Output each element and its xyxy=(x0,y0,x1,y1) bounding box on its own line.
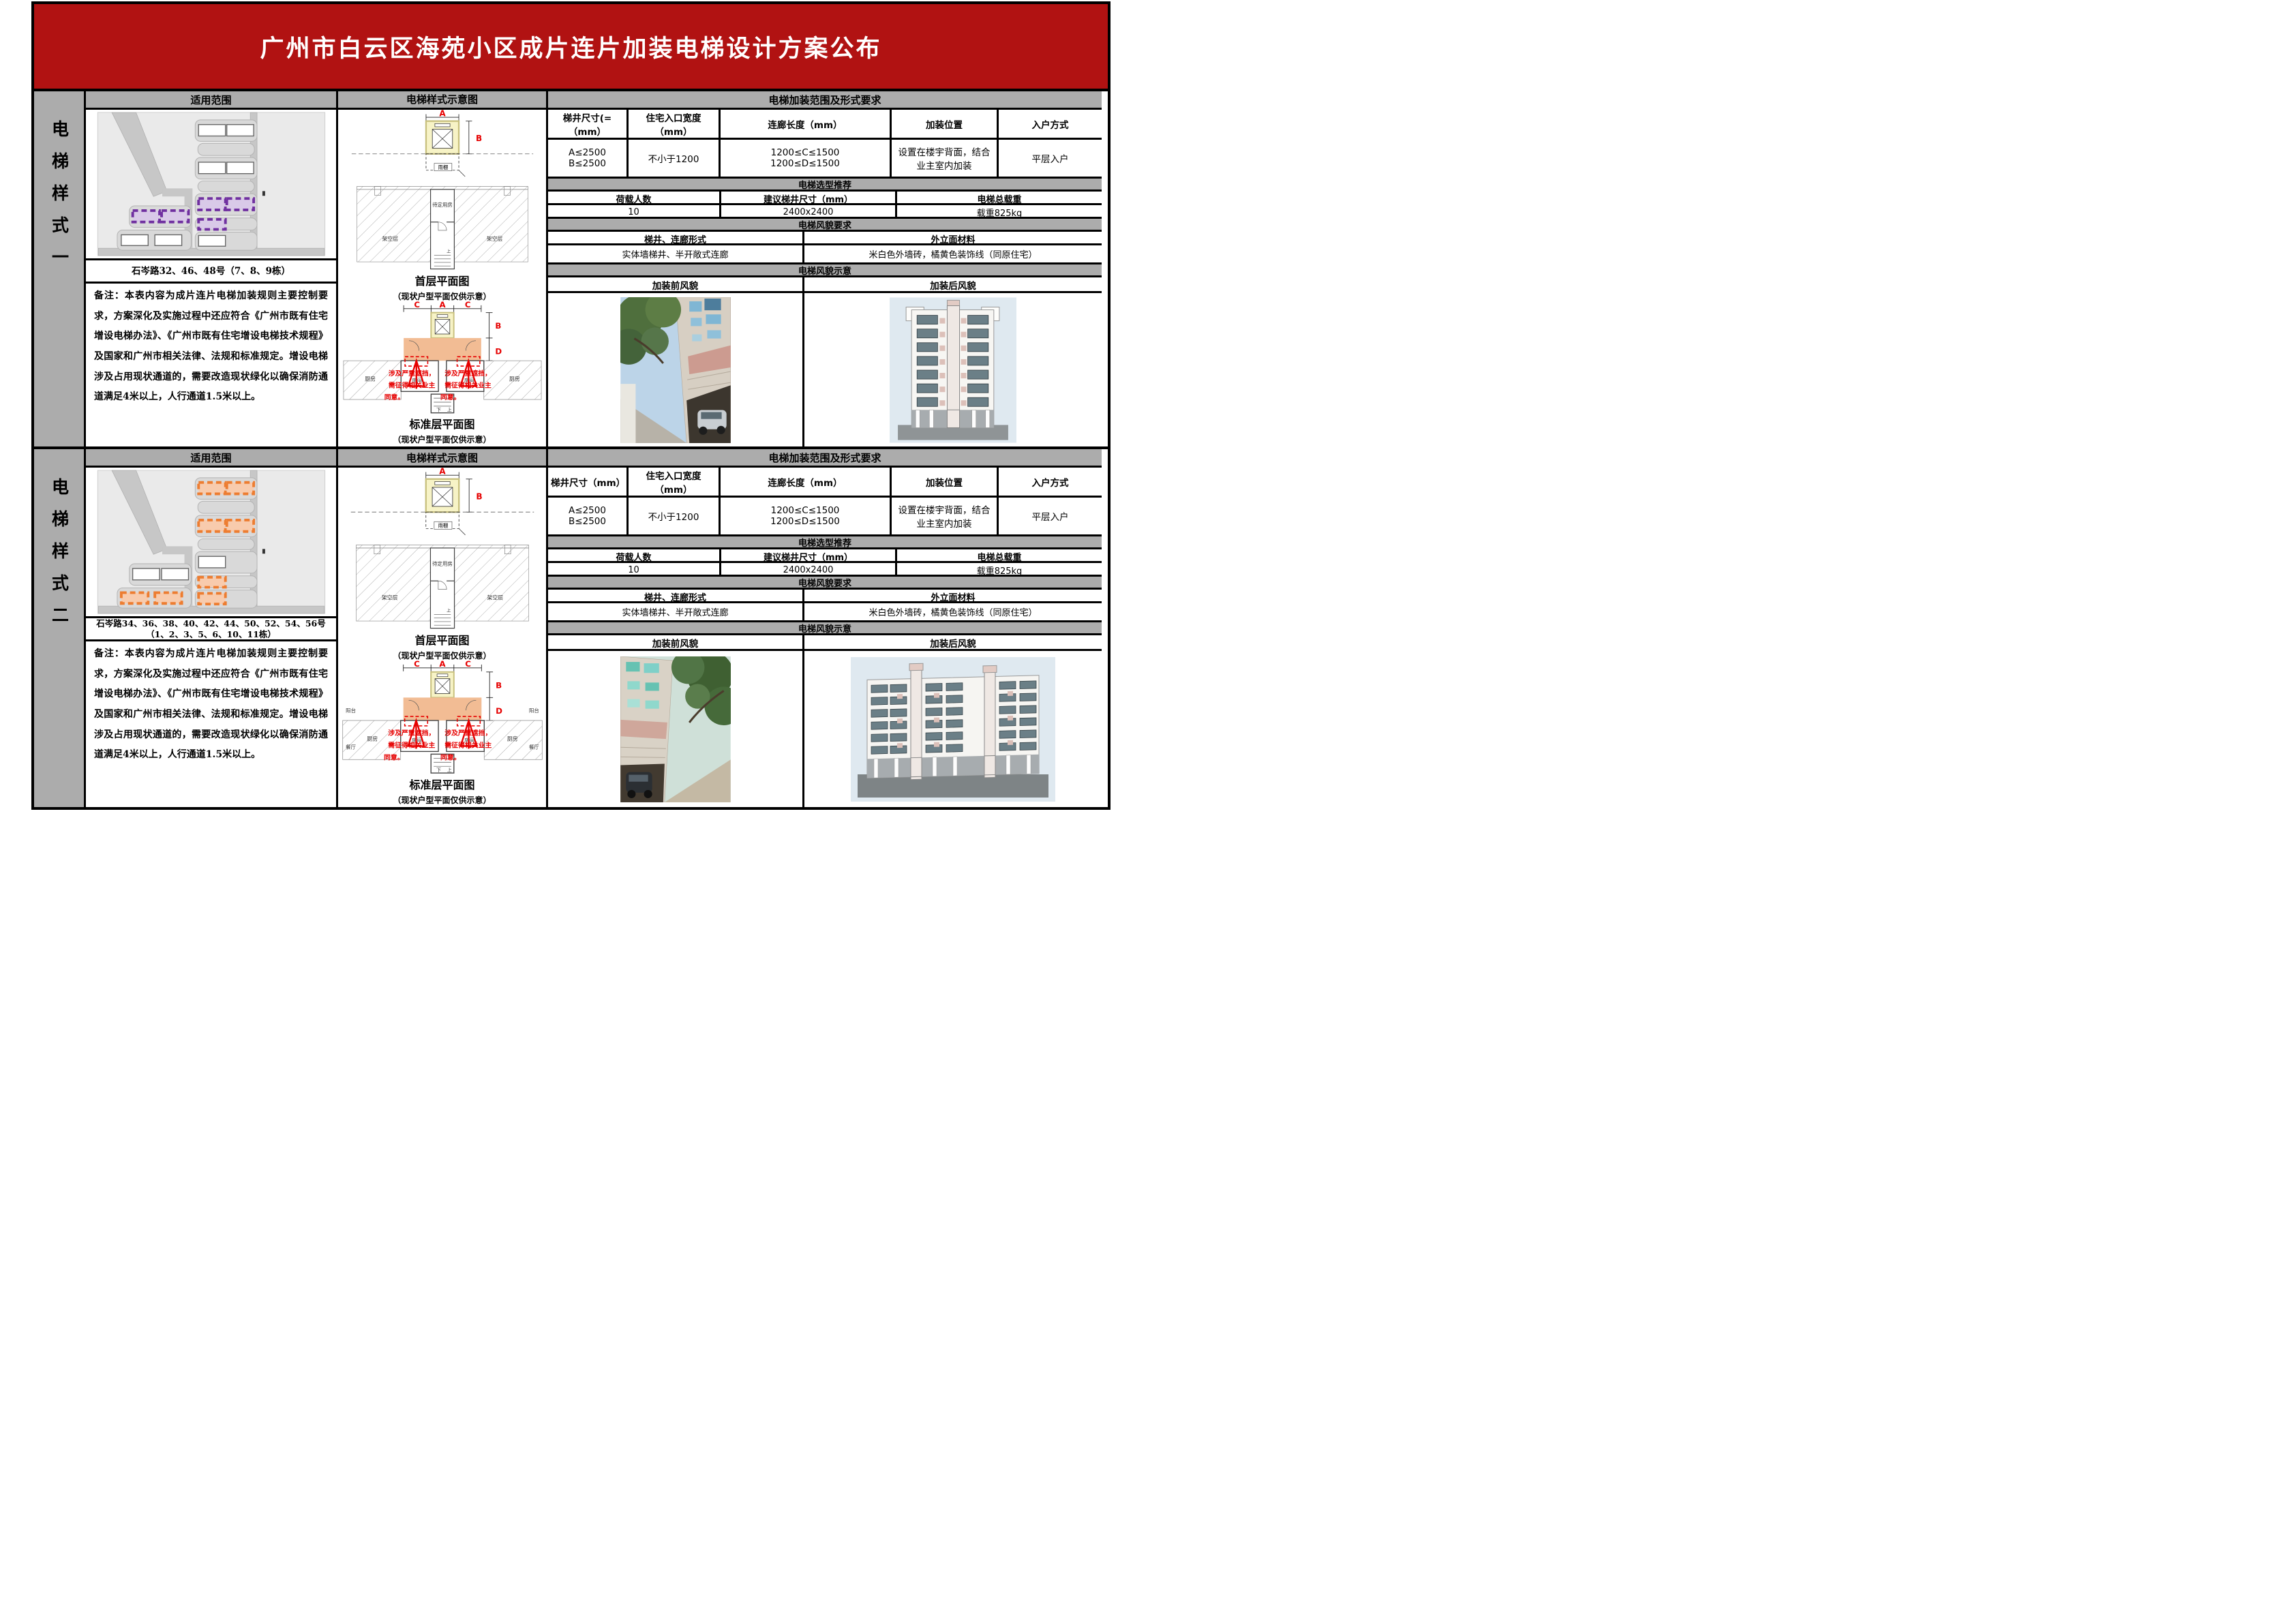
dim-a-label: A xyxy=(439,110,446,118)
cell-value: 载重825kg xyxy=(895,205,1102,219)
dim-b-label: B xyxy=(496,681,502,691)
photo-before-cell xyxy=(548,651,802,807)
side-label-style-1: 电梯样式一 xyxy=(34,91,86,446)
col-header: 外立面材料 xyxy=(802,590,1102,604)
appearance-values: 实体墙梯井、半开敞式连廊 米白色外墙砖，橘黄色装饰线（同原住宅） xyxy=(548,603,1102,622)
photo-after-cell xyxy=(802,651,1102,807)
scope-note: 备注：本表内容为成片连片电梯加装规则主要控制要求，方案深化及实施过程中还应符合《… xyxy=(86,284,336,446)
cell-value: 实体墙梯井、半开敞式连廊 xyxy=(548,245,802,262)
selection-values: 10 2400x2400 载重825kg xyxy=(548,205,1102,219)
scope-address: 石岑路34、36、38、40、42、44、50、52、54、56号（1、2、3、… xyxy=(86,618,336,641)
diagram-column-2: 电梯样式示意图 A B 雨棚 xyxy=(338,449,548,807)
dim-a-label: A xyxy=(439,468,446,476)
cell-value: A≤2500 B≤2500 xyxy=(548,140,626,177)
col-header: 加装前风貌 xyxy=(548,635,802,650)
requirements-header: 电梯加装范围及形式要求 xyxy=(548,449,1102,468)
requirements-col-headers: 梯井尺寸（mm） 住宅入口宽度（mm） 连廊长度（mm） 加装位置 入户方式 xyxy=(548,468,1102,498)
appearance-values: 实体墙梯井、半开敞式连廊 米白色外墙砖，橘黄色装饰线（同原住宅） xyxy=(548,245,1102,264)
cell-value: 米白色外墙砖，橘黄色装饰线（同原住宅） xyxy=(802,245,1102,262)
selection-header: 电梯选型推荐 xyxy=(548,536,1102,549)
site-map-area-2 xyxy=(86,468,336,618)
col-header: 住宅入口宽度（mm） xyxy=(626,110,719,138)
diagram-header: 电梯样式示意图 xyxy=(338,449,546,468)
scope-note: 备注：本表内容为成片连片电梯加装规则主要控制要求，方案深化及实施过程中还应符合《… xyxy=(86,641,336,807)
cell-value: 不小于1200 xyxy=(626,140,719,177)
poster-frame: 广州市白云区海苑小区成片连片加装电梯设计方案公布 电梯样式一 适用范围 xyxy=(31,1,1111,810)
shaft-schematic-2: A B 雨棚 xyxy=(340,468,545,543)
dim-a-label: A xyxy=(439,660,446,669)
balcony-right-label: 阳台 xyxy=(529,707,539,714)
first-floor-caption-wrap: 首层平面图 （现状户型平面仅供示意） xyxy=(338,631,546,660)
col-header: 连廊长度（mm） xyxy=(719,110,890,138)
photo-after-illustration xyxy=(890,297,1016,443)
scope-column-1: 适用范围 xyxy=(86,91,338,446)
col-header: 荷载人数 xyxy=(548,192,719,206)
col-header: 建议梯井尺寸（mm） xyxy=(719,192,895,206)
col-header: 电梯总载重 xyxy=(895,549,1102,564)
cell-value: 实体墙梯井、半开敞式连廊 xyxy=(548,603,802,620)
standard-note: （现状户型平面仅供示意） xyxy=(338,434,546,445)
col-header: 梯井、连廊形式 xyxy=(548,590,802,604)
scope-column-2: 适用范围 xyxy=(86,449,338,807)
appearance-col-headers: 梯井、连廊形式 外立面材料 xyxy=(548,232,1102,245)
dim-b-label: B xyxy=(495,321,501,331)
standard-caption: 标准层平面图 xyxy=(338,776,546,792)
standard-floor-plan-2: C A C B D 下 xyxy=(340,660,545,776)
col-header: 加装后风貌 xyxy=(802,635,1102,650)
dim-a-label: A xyxy=(439,301,446,309)
kitchen-right-label: 厨房 xyxy=(509,375,520,382)
col-header: 加装位置 xyxy=(890,110,997,138)
dim-d-label: D xyxy=(495,346,502,356)
site-map-style-1 xyxy=(97,112,326,256)
col-header: 电梯总载重 xyxy=(895,192,1102,206)
dim-b-label: B xyxy=(475,134,481,143)
warning-left: 涉及严重遮挡， 需征得相关业主 同意。 xyxy=(384,729,438,762)
photo-after-cell xyxy=(802,293,1102,446)
dim-c-right-label: C xyxy=(465,660,471,669)
demo-header: 电梯风貌示意 xyxy=(548,622,1102,635)
stairs-down-label: 下 xyxy=(436,768,441,773)
cell-value: 平层入户 xyxy=(997,140,1102,177)
kitchen-right-label: 厨房 xyxy=(507,735,517,742)
appearance-col-headers: 梯井、连廊形式 外立面材料 xyxy=(548,590,1102,603)
stairs-up-label: 上 xyxy=(447,249,451,254)
site-map-style-2 xyxy=(97,470,326,614)
dim-b-label: B xyxy=(476,492,482,502)
dim-c-right-label: C xyxy=(464,301,470,309)
photo-before-cell xyxy=(548,293,802,446)
dim-d-label: D xyxy=(496,706,502,716)
dining-right-label: 餐厅 xyxy=(529,744,539,750)
selection-col-headers: 荷载人数 建议梯井尺寸（mm） 电梯总载重 xyxy=(548,192,1102,205)
diagram-header: 电梯样式示意图 xyxy=(338,91,546,110)
section-style-1: 电梯样式一 适用范围 xyxy=(34,91,1108,449)
dining-left-label: 餐厅 xyxy=(346,744,356,750)
first-floor-caption: 首层平面图 xyxy=(338,272,546,288)
cell-value: 平层入户 xyxy=(997,498,1102,534)
requirements-column-1: 电梯加装范围及形式要求 梯井尺寸(=（mm） 住宅入口宽度（mm） 连廊长度（m… xyxy=(548,91,1102,446)
warning-left: 涉及严重遮挡， 需征得相关业主 同意。 xyxy=(384,369,437,401)
cell-value: A≤2500 B≤2500 xyxy=(548,498,626,534)
stilt-left-label: 架空层 xyxy=(381,594,397,601)
col-header: 加装位置 xyxy=(890,468,997,496)
selection-values: 10 2400x2400 载重825kg xyxy=(548,563,1102,577)
side-label-text: 电梯样式二 xyxy=(47,449,72,807)
requirements-header: 电梯加装范围及形式要求 xyxy=(548,91,1102,110)
requirements-values: A≤2500 B≤2500 不小于1200 1200≤C≤1500 1200≤D… xyxy=(548,140,1102,179)
cell-value: 10 xyxy=(548,563,719,577)
scope-header: 适用范围 xyxy=(86,449,336,468)
section-style-2: 电梯样式二 适用范围 xyxy=(34,449,1108,807)
col-header: 加装后风貌 xyxy=(802,277,1102,292)
selection-header: 电梯选型推荐 xyxy=(548,179,1102,192)
site-map-area-1 xyxy=(86,110,336,260)
demo-header: 电梯风貌示意 xyxy=(548,264,1102,277)
stilt-right-label: 架空层 xyxy=(487,594,503,601)
pending-room-label: 待定用房 xyxy=(432,202,453,208)
cell-value: 1200≤C≤1500 1200≤D≤1500 xyxy=(719,498,890,534)
col-header: 梯井尺寸(=（mm） xyxy=(548,110,626,138)
cell-value: 米白色外墙砖，橘黄色装饰线（同原住宅） xyxy=(802,603,1102,620)
cell-value: 不小于1200 xyxy=(626,498,719,534)
side-label-style-2: 电梯样式二 xyxy=(34,449,86,807)
cell-value: 设置在楼宇背面，结合业主室内加装 xyxy=(890,498,997,534)
side-label-text: 电梯样式一 xyxy=(47,91,72,446)
cell-value: 载重825kg xyxy=(895,563,1102,577)
cell-value: 10 xyxy=(548,205,719,219)
col-header: 入户方式 xyxy=(997,110,1102,138)
scope-header: 适用范围 xyxy=(86,91,336,110)
col-header: 建议梯井尺寸（mm） xyxy=(719,549,895,564)
stilt-left-label: 架空层 xyxy=(382,235,398,242)
kitchen-left-label: 厨房 xyxy=(367,735,378,742)
requirements-column-2: 电梯加装范围及形式要求 梯井尺寸（mm） 住宅入口宽度（mm） 连廊长度（mm）… xyxy=(548,449,1102,807)
balcony-left-label: 阳台 xyxy=(346,707,356,714)
title-banner: 广州市白云区海苑小区成片连片加装电梯设计方案公布 xyxy=(34,4,1108,91)
photo-after-illustration xyxy=(851,656,1055,802)
stilt-right-label: 架空层 xyxy=(486,235,502,242)
scope-address: 石岑路32、46、48号（7、8、9栋） xyxy=(86,260,336,284)
page-title: 广州市白云区海苑小区成片连片加装电梯设计方案公布 xyxy=(260,29,881,64)
requirements-col-headers: 梯井尺寸(=（mm） 住宅入口宽度（mm） 连廊长度（mm） 加装位置 入户方式 xyxy=(548,110,1102,140)
appearance-header: 电梯风貌要求 xyxy=(548,577,1102,590)
first-floor-plan-1: 待定用房 架空层 架空层 上 xyxy=(340,184,545,272)
kitchen-left-label: 厨房 xyxy=(365,375,376,382)
standard-caption: 标准层平面图 xyxy=(338,415,546,431)
stairs-up-label: 上 xyxy=(447,767,451,773)
demo-col-headers: 加装前风貌 加装后风貌 xyxy=(548,277,1102,293)
dim-c-left-label: C xyxy=(414,301,420,309)
col-header: 连廊长度（mm） xyxy=(719,468,890,496)
stairs-up-label: 上 xyxy=(447,406,451,412)
col-header: 梯井、连廊形式 xyxy=(548,232,802,246)
canopy-label: 雨棚 xyxy=(438,522,448,529)
col-header: 荷载人数 xyxy=(548,549,719,564)
stairs-up-label: 上 xyxy=(447,608,451,613)
col-header: 外立面材料 xyxy=(802,232,1102,246)
requirements-values: A≤2500 B≤2500 不小于1200 1200≤C≤1500 1200≤D… xyxy=(548,498,1102,536)
cell-value: 1200≤C≤1500 1200≤D≤1500 xyxy=(719,140,890,177)
photo-before-illustration xyxy=(620,297,731,443)
demo-photos-2 xyxy=(548,651,1102,807)
notice-poster-page: 广州市白云区海苑小区成片连片加装电梯设计方案公布 电梯样式一 适用范围 xyxy=(0,0,1148,811)
first-floor-caption: 首层平面图 xyxy=(338,631,546,648)
standard-floor-plan-1: C A C B D 下 上 xyxy=(340,301,545,416)
standard-caption-wrap: 标准层平面图 （现状户型平面仅供示意） xyxy=(338,415,546,446)
standard-note: （现状户型平面仅供示意） xyxy=(338,794,546,806)
shaft-schematic-1: A B 雨棚 xyxy=(340,110,545,184)
first-floor-caption-wrap: 首层平面图 （现状户型平面仅供示意） xyxy=(338,272,546,301)
demo-photos-1 xyxy=(548,293,1102,446)
col-header: 加装前风貌 xyxy=(548,277,802,292)
selection-col-headers: 荷载人数 建议梯井尺寸（mm） 电梯总载重 xyxy=(548,549,1102,563)
demo-col-headers: 加装前风貌 加装后风貌 xyxy=(548,635,1102,651)
first-floor-plan-2: 待定用房 架空层 架空层 上 xyxy=(340,543,545,631)
col-header: 入户方式 xyxy=(997,468,1102,496)
stairs-down-label: 下 xyxy=(436,407,441,412)
standard-caption-wrap: 标准层平面图 （现状户型平面仅供示意） xyxy=(338,776,546,807)
photo-before-illustration xyxy=(620,656,731,802)
col-header: 住宅入口宽度（mm） xyxy=(626,468,719,496)
appearance-header: 电梯风貌要求 xyxy=(548,219,1102,232)
canopy-label: 雨棚 xyxy=(438,164,448,170)
col-header: 梯井尺寸（mm） xyxy=(548,468,626,496)
pending-room-label: 待定用房 xyxy=(432,560,453,566)
cell-value: 设置在楼宇背面，结合业主室内加装 xyxy=(890,140,997,177)
dim-c-left-label: C xyxy=(414,660,420,669)
diagram-column-1: 电梯样式示意图 A B 雨棚 xyxy=(338,91,548,446)
